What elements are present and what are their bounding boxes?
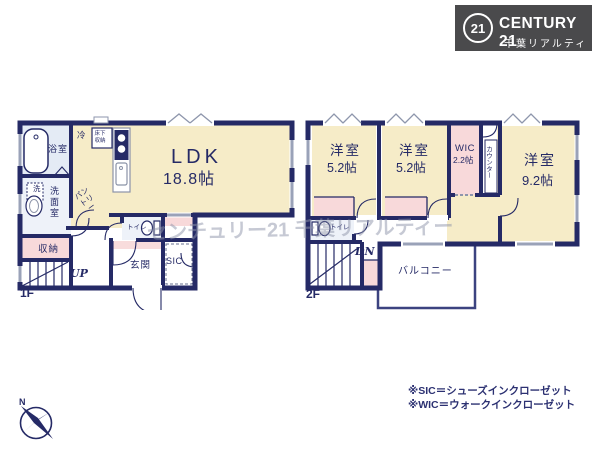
footnotes: ※SIC＝シューズインクローゼット ※WIC＝ウォークインクローゼット (408, 385, 575, 412)
room-label-washroom: 洗面室 (49, 186, 58, 219)
company-name: 千葉リアルティー (504, 35, 592, 65)
footnote-wic: ※WIC＝ウォークインクローゼット (408, 399, 575, 413)
stairs-up-label: UP (70, 268, 88, 279)
room-size-bedroom1: 5.2帖 (327, 162, 357, 175)
room-label-bedroom3: 洋室 (524, 153, 556, 167)
room-label-wic: WIC (455, 144, 475, 154)
compass-icon (10, 395, 62, 447)
room-size-ldk: 18.8帖 (163, 172, 215, 188)
floor2-label: 2F (306, 288, 320, 300)
label-underfloor-storage: 床下収納 (93, 131, 107, 145)
label-washer: 洗 (33, 185, 41, 193)
label-counter: カウンター (484, 146, 491, 179)
compass-north-label: N (19, 397, 26, 407)
basin-icon (26, 196, 42, 216)
room-label-ldk: LDK (171, 147, 222, 167)
footnote-sic: ※SIC＝シューズインクローゼット (408, 385, 575, 399)
room-label-toilet-1f: トイレ (127, 225, 147, 232)
room-label-bedroom2: 洋室 (399, 144, 430, 158)
room-size-bedroom3: 9.2帖 (522, 174, 553, 187)
room-label-storage: 収納 (38, 245, 59, 255)
room-label-bedroom1: 洋室 (330, 144, 361, 158)
room-size-bedroom2: 5.2帖 (396, 162, 426, 175)
century21-badge-icon: 21 (463, 13, 493, 43)
floor1-label: 1F (20, 287, 34, 299)
front-door-icon (133, 288, 161, 310)
room-label-sic: SIC (166, 257, 183, 266)
bathtub-icon (24, 129, 48, 173)
badge-number: 21 (471, 21, 485, 36)
room-label-bathroom: 浴室 (48, 145, 68, 154)
stairs-down-label: DN (355, 246, 375, 257)
floorplan-page: 21 CENTURY 21 千葉リアルティー (0, 0, 600, 450)
vent-icon (94, 117, 108, 123)
room-label-balcony: バルコニー (398, 267, 453, 277)
label-refrigerator: 冷 (77, 131, 86, 140)
century21-logo: 21 CENTURY 21 千葉リアルティー (455, 5, 592, 51)
kitchen-counter-icon (113, 128, 130, 192)
room-label-entrance: 玄関 (130, 261, 151, 271)
room-size-wic: 2.2帖 (453, 156, 473, 165)
